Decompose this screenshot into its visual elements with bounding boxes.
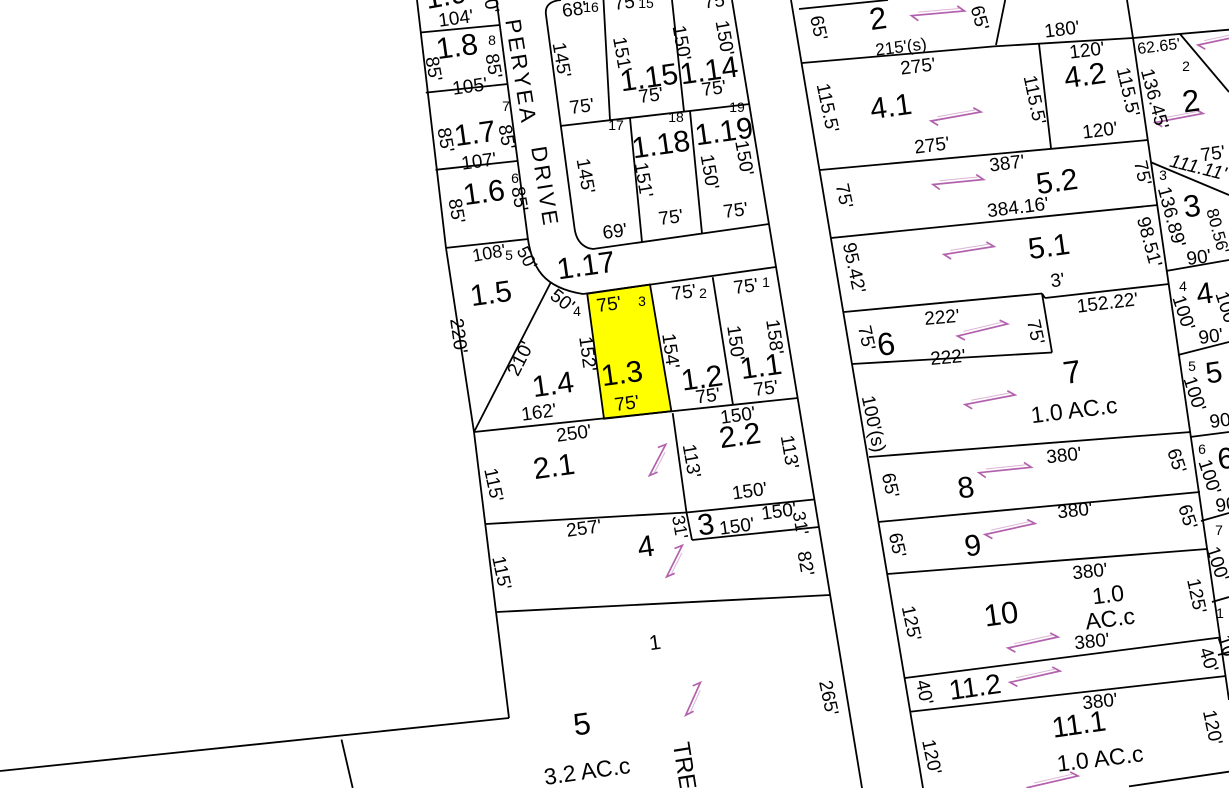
svg-text:2.1: 2.1 [531,448,577,486]
svg-text:85': 85' [421,55,446,83]
svg-text:1: 1 [1216,605,1224,621]
svg-text:75': 75' [568,95,595,119]
svg-text:6: 6 [511,170,519,186]
svg-text:17: 17 [608,117,624,133]
svg-text:1: 1 [762,274,770,290]
svg-text:90': 90' [1208,409,1229,433]
svg-text:380': 380' [1045,444,1082,469]
svg-text:380': 380' [1071,560,1108,585]
svg-text:275': 275' [913,133,951,158]
svg-text:1.4: 1.4 [530,366,576,404]
svg-text:85': 85' [433,126,458,154]
svg-text:275': 275' [899,54,937,79]
svg-text:5: 5 [505,247,513,263]
svg-text:2: 2 [1182,58,1190,74]
svg-text:5: 5 [1188,358,1196,374]
svg-text:4: 4 [573,303,581,319]
svg-text:69': 69' [601,220,628,244]
svg-text:1.6: 1.6 [461,174,507,212]
svg-text:120': 120' [1081,118,1119,143]
svg-text:90': 90' [1197,325,1224,349]
svg-text:8: 8 [488,32,496,48]
svg-text:16: 16 [583,0,599,15]
svg-text:75': 75' [722,199,749,223]
svg-text:75': 75' [752,377,779,401]
svg-text:3': 3' [1049,270,1066,293]
svg-text:85': 85' [444,197,469,225]
svg-text:387': 387' [988,151,1026,176]
svg-text:222': 222' [923,306,960,330]
svg-text:75': 75' [700,77,727,101]
svg-text:6: 6 [1198,441,1206,457]
svg-text:90': 90' [1185,246,1212,270]
svg-text:75': 75' [732,275,759,299]
svg-text:380': 380' [1056,499,1093,524]
svg-text:4: 4 [1179,278,1187,294]
svg-text:2.2: 2.2 [717,417,763,455]
svg-text:5.1: 5.1 [1026,228,1072,266]
svg-text:222': 222' [929,346,966,370]
svg-text:82': 82' [793,549,818,577]
svg-text:1.5: 1.5 [468,275,514,313]
svg-text:15: 15 [638,0,654,11]
svg-text:380': 380' [1073,630,1110,655]
svg-text:75': 75' [670,281,697,305]
svg-text:75': 75' [694,384,721,408]
svg-text:7: 7 [502,98,510,114]
svg-text:75': 75' [637,84,664,108]
svg-text:85': 85' [507,185,532,213]
svg-text:75': 75' [657,206,684,230]
svg-text:7: 7 [1215,522,1223,538]
svg-text:4.2: 4.2 [1062,57,1108,95]
svg-text:1.7: 1.7 [452,115,498,153]
svg-text:2: 2 [699,285,707,301]
svg-text:180': 180' [1043,17,1081,42]
svg-text:90': 90' [1214,493,1229,517]
svg-text:75': 75' [613,392,640,416]
svg-text:1.3: 1.3 [599,355,645,393]
svg-text:3: 3 [638,293,646,309]
svg-text:31': 31' [668,514,692,541]
svg-text:4.1: 4.1 [868,88,914,126]
svg-text:3: 3 [1159,167,1167,183]
svg-text:75': 75' [595,293,622,317]
svg-text:85': 85' [494,123,519,151]
svg-text:18: 18 [668,109,684,125]
svg-text:10: 10 [981,594,1020,633]
svg-text:31': 31' [789,510,813,537]
